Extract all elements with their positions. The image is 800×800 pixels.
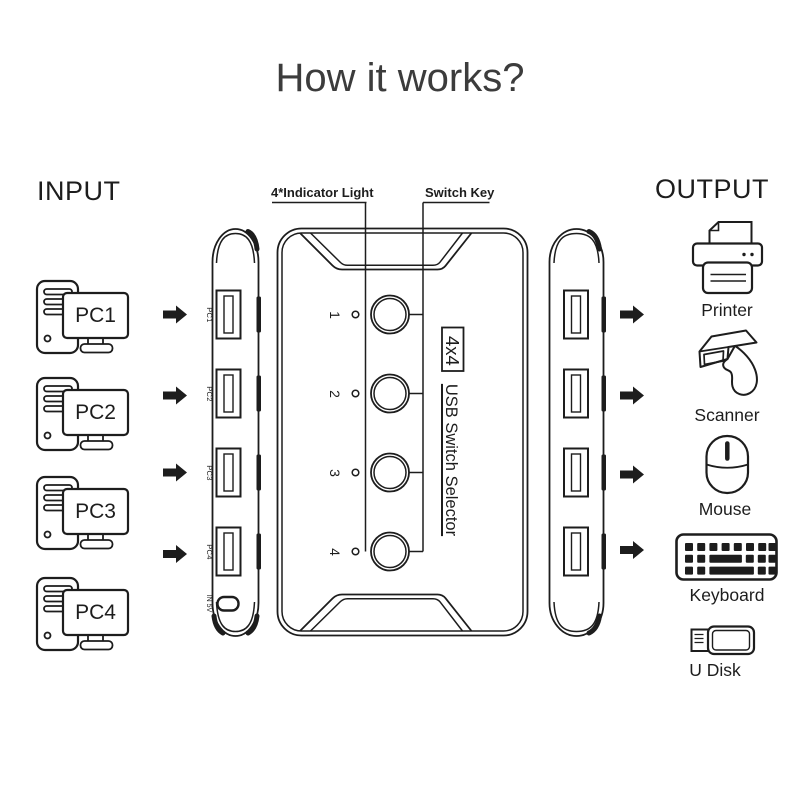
input-port-label-2: PC2 xyxy=(204,380,214,408)
mouse-label: Mouse xyxy=(650,499,800,520)
arrow-right-icon xyxy=(163,387,187,405)
arrow-right-icon xyxy=(620,387,644,405)
panel-tab xyxy=(602,297,607,333)
switch-device xyxy=(272,203,528,636)
panel-tab xyxy=(257,534,262,570)
usb-port-icon xyxy=(217,291,241,339)
usb-port-icon xyxy=(217,370,241,418)
input-arrows xyxy=(163,306,187,564)
keyboard-icon xyxy=(677,535,777,580)
power-port-label: IN 5V xyxy=(204,590,213,617)
model-badge: 4x4 xyxy=(442,336,462,363)
panel-tab xyxy=(257,297,262,333)
output-section-label: OUTPUT xyxy=(655,174,769,205)
input-port-label-4: PC4 xyxy=(204,538,214,566)
input-port-label-3: PC3 xyxy=(204,459,214,487)
usb-port-icon xyxy=(564,528,588,576)
arrow-right-icon xyxy=(620,306,644,324)
switch-button xyxy=(371,296,409,334)
arrow-right-icon xyxy=(163,545,187,563)
usb-port-icon xyxy=(217,449,241,497)
spacebar-key xyxy=(709,567,754,575)
input-section-label: INPUT xyxy=(37,176,121,207)
switch-key-label: Switch Key xyxy=(425,185,494,200)
pc4-label: PC4 xyxy=(63,590,128,635)
arrow-right-icon xyxy=(163,464,187,482)
switch-button xyxy=(371,454,409,492)
arrow-right-icon xyxy=(163,306,187,324)
panel-tab xyxy=(257,455,262,491)
arrow-right-icon xyxy=(620,466,644,484)
channel-number-1: 1 xyxy=(327,307,343,323)
keyboard-label: Keyboard xyxy=(652,585,800,606)
scanner-label: Scanner xyxy=(652,405,800,426)
panel-tab xyxy=(602,376,607,412)
mouse-icon xyxy=(707,436,749,493)
switch-button xyxy=(371,375,409,413)
arrow-right-icon xyxy=(620,541,644,559)
udisk-label: U Disk xyxy=(640,660,790,681)
indicator-light-label: 4*Indicator Light xyxy=(271,185,374,200)
micro-usb-port-icon xyxy=(218,597,239,611)
pc1-label: PC1 xyxy=(63,293,128,338)
usb-port-icon xyxy=(564,449,588,497)
panel-tab xyxy=(257,376,262,412)
usb-drive-icon xyxy=(692,627,755,655)
input-side-panel xyxy=(213,229,262,636)
scanner-icon xyxy=(700,331,757,395)
pc2-label: PC2 xyxy=(63,390,128,435)
usb-port-icon xyxy=(217,528,241,576)
channel-number-3: 3 xyxy=(327,465,343,481)
panel-tab xyxy=(602,455,607,491)
channel-number-2: 2 xyxy=(327,386,343,402)
pc3-label: PC3 xyxy=(63,489,128,534)
printer-label: Printer xyxy=(652,300,800,321)
diagram-canvas: How it works? INPUT OUTPUT PC1 PC2 PC3 P… xyxy=(0,0,800,800)
input-port-label-1: PC1 xyxy=(204,301,214,329)
usb-port-icon xyxy=(564,291,588,339)
channel-number-4: 4 xyxy=(327,544,343,560)
switch-button xyxy=(371,533,409,571)
page-title: How it works? xyxy=(0,56,800,101)
output-arrows xyxy=(620,306,644,560)
product-name: USB Switch Selector xyxy=(441,381,461,539)
usb-port-icon xyxy=(564,370,588,418)
printer-icon xyxy=(693,222,762,293)
panel-tab xyxy=(602,534,607,570)
output-side-panel xyxy=(550,229,607,636)
